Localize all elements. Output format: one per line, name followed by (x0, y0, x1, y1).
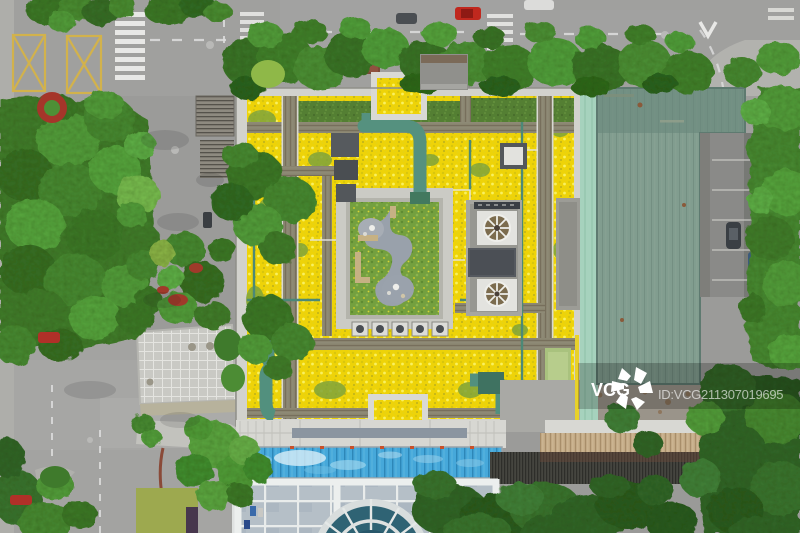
svg-text:ID:VCG211307019695: ID:VCG211307019695 (658, 387, 783, 402)
